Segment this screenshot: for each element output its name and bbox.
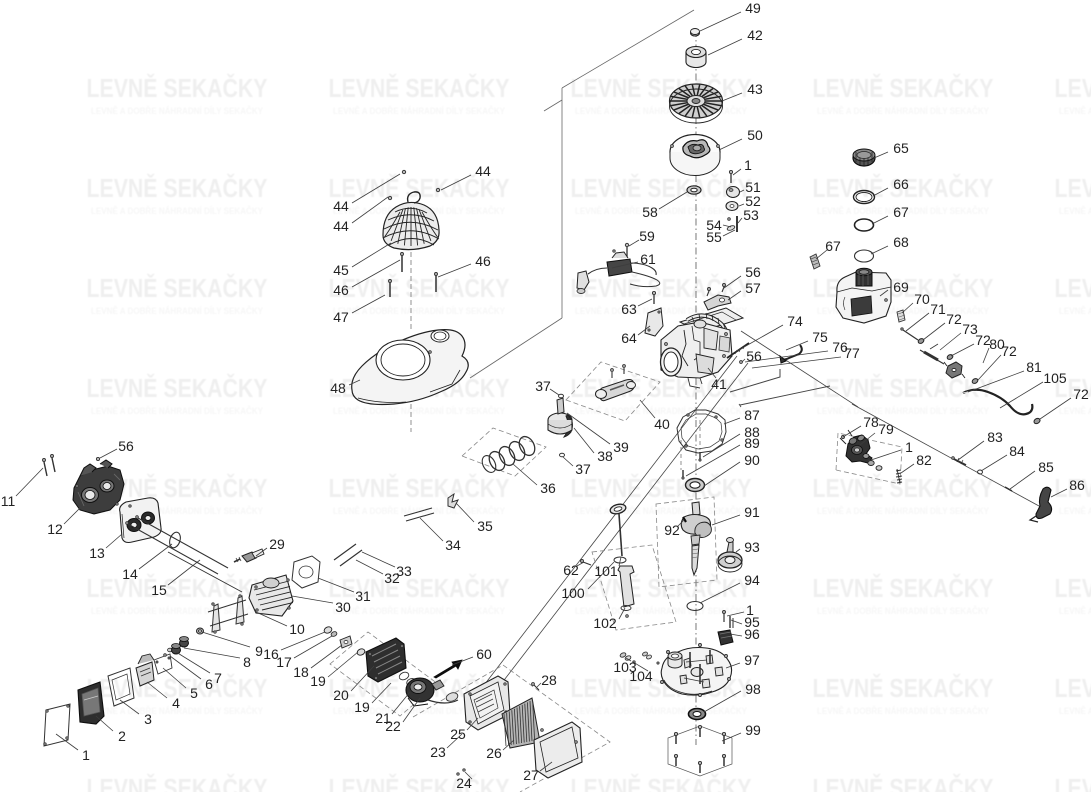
svg-text:3: 3 [144, 711, 152, 727]
svg-text:LEVNĚ SEKAČKY: LEVNĚ SEKAČKY [87, 373, 268, 403]
svg-text:89: 89 [744, 435, 760, 451]
svg-text:30: 30 [335, 599, 351, 615]
svg-text:14: 14 [122, 566, 138, 582]
svg-text:LEVNĚ SEKAČKY: LEVNĚ SEKAČKY [571, 773, 752, 792]
svg-text:49: 49 [745, 0, 761, 16]
svg-text:18: 18 [293, 664, 309, 680]
svg-text:LEVNĚ A DOBŘE NÁHRADNÍ DÍLY SE: LEVNĚ A DOBŘE NÁHRADNÍ DÍLY SEKAČKY [1059, 305, 1091, 317]
svg-text:34: 34 [445, 537, 461, 553]
svg-text:LEVNĚ A DOBŘE NÁHRADNÍ DÍLY SE: LEVNĚ A DOBŘE NÁHRADNÍ DÍLY SEKAČKY [1059, 705, 1091, 717]
svg-text:LEVNĚ A DOBŘE NÁHRADNÍ DÍLY SE: LEVNĚ A DOBŘE NÁHRADNÍ DÍLY SEKAČKY [91, 405, 264, 417]
svg-text:71: 71 [930, 301, 946, 317]
svg-text:LEVNĚ A DOBŘE NÁHRADNÍ DÍLY SE: LEVNĚ A DOBŘE NÁHRADNÍ DÍLY SEKAČKY [333, 605, 506, 617]
svg-text:19: 19 [310, 673, 326, 689]
svg-text:19: 19 [354, 699, 370, 715]
svg-text:75: 75 [812, 329, 828, 345]
svg-text:LEVNĚ SEKAČKY: LEVNĚ SEKAČKY [329, 73, 510, 103]
svg-text:55: 55 [706, 229, 722, 245]
svg-text:33: 33 [396, 563, 412, 579]
svg-text:LEVNĚ SEKAČKY: LEVNĚ SEKAČKY [1055, 273, 1091, 303]
svg-text:25: 25 [450, 726, 466, 742]
svg-text:LEVNĚ A DOBŘE NÁHRADNÍ DÍLY SE: LEVNĚ A DOBŘE NÁHRADNÍ DÍLY SEKAČKY [91, 505, 264, 517]
svg-text:LEVNĚ SEKAČKY: LEVNĚ SEKAČKY [87, 73, 268, 103]
svg-text:LEVNĚ A DOBŘE NÁHRADNÍ DÍLY SE: LEVNĚ A DOBŘE NÁHRADNÍ DÍLY SEKAČKY [333, 305, 506, 317]
svg-text:44: 44 [475, 163, 491, 179]
svg-text:1: 1 [905, 439, 913, 455]
svg-text:74: 74 [787, 313, 803, 329]
svg-text:50: 50 [747, 127, 763, 143]
svg-text:85: 85 [1038, 459, 1054, 475]
svg-text:LEVNĚ SEKAČKY: LEVNĚ SEKAČKY [571, 173, 752, 203]
svg-text:70: 70 [914, 291, 930, 307]
svg-text:20: 20 [333, 687, 349, 703]
svg-text:56: 56 [118, 438, 134, 454]
svg-text:56: 56 [746, 348, 762, 364]
svg-text:59: 59 [639, 228, 655, 244]
svg-text:LEVNĚ SEKAČKY: LEVNĚ SEKAČKY [329, 773, 510, 792]
svg-text:LEVNĚ A DOBŘE NÁHRADNÍ DÍLY SE: LEVNĚ A DOBŘE NÁHRADNÍ DÍLY SEKAČKY [817, 505, 990, 517]
svg-text:67: 67 [825, 238, 841, 254]
svg-text:92: 92 [664, 522, 680, 538]
svg-text:LEVNĚ SEKAČKY: LEVNĚ SEKAČKY [329, 473, 510, 503]
svg-text:LEVNĚ SEKAČKY: LEVNĚ SEKAČKY [1055, 173, 1091, 203]
svg-text:13: 13 [89, 545, 105, 561]
svg-text:LEVNĚ SEKAČKY: LEVNĚ SEKAČKY [1055, 773, 1091, 792]
svg-text:100: 100 [561, 585, 585, 601]
svg-text:41: 41 [711, 376, 727, 392]
svg-text:LEVNĚ SEKAČKY: LEVNĚ SEKAČKY [1055, 573, 1091, 603]
svg-text:LEVNĚ A DOBŘE NÁHRADNÍ DÍLY SE: LEVNĚ A DOBŘE NÁHRADNÍ DÍLY SEKAČKY [575, 205, 748, 217]
svg-text:67: 67 [893, 204, 909, 220]
svg-text:78: 78 [863, 414, 879, 430]
svg-text:56: 56 [745, 264, 761, 280]
svg-text:46: 46 [475, 253, 491, 269]
svg-text:37: 37 [535, 378, 551, 394]
svg-text:77: 77 [844, 345, 860, 361]
svg-text:96: 96 [744, 626, 760, 642]
svg-text:28: 28 [541, 672, 557, 688]
svg-text:31: 31 [355, 588, 371, 604]
svg-text:5: 5 [190, 685, 198, 701]
svg-text:72: 72 [1073, 386, 1089, 402]
svg-text:60: 60 [476, 646, 492, 662]
svg-text:64: 64 [621, 330, 637, 346]
svg-text:LEVNĚ A DOBŘE NÁHRADNÍ DÍLY SE: LEVNĚ A DOBŘE NÁHRADNÍ DÍLY SEKAČKY [817, 705, 990, 717]
svg-text:72: 72 [1001, 343, 1017, 359]
svg-text:46: 46 [333, 282, 349, 298]
svg-text:45: 45 [333, 262, 349, 278]
svg-text:40: 40 [654, 416, 670, 432]
svg-text:57: 57 [745, 280, 761, 296]
svg-text:47: 47 [333, 309, 349, 325]
svg-text:90: 90 [744, 452, 760, 468]
svg-text:2: 2 [118, 728, 126, 744]
svg-text:LEVNĚ SEKAČKY: LEVNĚ SEKAČKY [1055, 73, 1091, 103]
svg-text:48: 48 [330, 380, 346, 396]
svg-text:LEVNĚ SEKAČKY: LEVNĚ SEKAČKY [87, 773, 268, 792]
svg-text:38: 38 [597, 448, 613, 464]
svg-text:82: 82 [916, 452, 932, 468]
svg-text:26: 26 [486, 745, 502, 761]
svg-text:36: 36 [540, 480, 556, 496]
svg-text:LEVNĚ SEKAČKY: LEVNĚ SEKAČKY [813, 773, 994, 792]
svg-text:44: 44 [333, 198, 349, 214]
svg-text:62: 62 [563, 562, 579, 578]
svg-text:15: 15 [151, 582, 167, 598]
svg-text:7: 7 [214, 670, 222, 686]
svg-text:1: 1 [744, 157, 752, 173]
svg-text:22: 22 [385, 718, 401, 734]
svg-text:LEVNĚ A DOBŘE NÁHRADNÍ DÍLY SE: LEVNĚ A DOBŘE NÁHRADNÍ DÍLY SEKAČKY [333, 505, 506, 517]
svg-text:91: 91 [744, 504, 760, 520]
svg-text:68: 68 [893, 234, 909, 250]
svg-text:27: 27 [523, 767, 539, 783]
svg-text:44: 44 [333, 218, 349, 234]
svg-text:105: 105 [1043, 370, 1067, 386]
svg-text:102: 102 [593, 615, 617, 631]
svg-text:LEVNĚ SEKAČKY: LEVNĚ SEKAČKY [813, 573, 994, 603]
svg-text:37: 37 [575, 461, 591, 477]
svg-text:LEVNĚ SEKAČKY: LEVNĚ SEKAČKY [571, 73, 752, 103]
svg-text:LEVNĚ SEKAČKY: LEVNĚ SEKAČKY [571, 473, 752, 503]
svg-text:LEVNĚ A DOBŘE NÁHRADNÍ DÍLY SE: LEVNĚ A DOBŘE NÁHRADNÍ DÍLY SEKAČKY [333, 405, 506, 417]
svg-text:LEVNĚ SEKAČKY: LEVNĚ SEKAČKY [813, 73, 994, 103]
svg-text:LEVNĚ SEKAČKY: LEVNĚ SEKAČKY [87, 173, 268, 203]
svg-text:LEVNĚ A DOBŘE NÁHRADNÍ DÍLY SE: LEVNĚ A DOBŘE NÁHRADNÍ DÍLY SEKAČKY [333, 105, 506, 117]
svg-text:11: 11 [1, 493, 16, 509]
svg-text:8: 8 [243, 654, 251, 670]
svg-text:LEVNĚ A DOBŘE NÁHRADNÍ DÍLY SE: LEVNĚ A DOBŘE NÁHRADNÍ DÍLY SEKAČKY [1059, 105, 1091, 117]
svg-text:58: 58 [642, 204, 658, 220]
svg-text:86: 86 [1069, 477, 1085, 493]
svg-text:63: 63 [621, 301, 637, 317]
svg-text:LEVNĚ A DOBŘE NÁHRADNÍ DÍLY SE: LEVNĚ A DOBŘE NÁHRADNÍ DÍLY SEKAČKY [1059, 605, 1091, 617]
svg-text:LEVNĚ A DOBŘE NÁHRADNÍ DÍLY SE: LEVNĚ A DOBŘE NÁHRADNÍ DÍLY SEKAČKY [91, 305, 264, 317]
svg-text:LEVNĚ SEKAČKY: LEVNĚ SEKAČKY [1055, 673, 1091, 703]
svg-text:LEVNĚ A DOBŘE NÁHRADNÍ DÍLY SE: LEVNĚ A DOBŘE NÁHRADNÍ DÍLY SEKAČKY [91, 205, 264, 217]
svg-text:LEVNĚ A DOBŘE NÁHRADNÍ DÍLY SE: LEVNĚ A DOBŘE NÁHRADNÍ DÍLY SEKAČKY [817, 405, 990, 417]
svg-text:42: 42 [747, 27, 763, 43]
svg-text:1: 1 [82, 747, 90, 763]
svg-text:LEVNĚ A DOBŘE NÁHRADNÍ DÍLY SE: LEVNĚ A DOBŘE NÁHRADNÍ DÍLY SEKAČKY [817, 105, 990, 117]
svg-text:10: 10 [289, 621, 305, 637]
svg-text:101: 101 [594, 563, 618, 579]
svg-text:LEVNĚ A DOBŘE NÁHRADNÍ DÍLY SE: LEVNĚ A DOBŘE NÁHRADNÍ DÍLY SEKAČKY [1059, 505, 1091, 517]
svg-text:LEVNĚ A DOBŘE NÁHRADNÍ DÍLY SE: LEVNĚ A DOBŘE NÁHRADNÍ DÍLY SEKAČKY [1059, 405, 1091, 417]
svg-text:66: 66 [893, 176, 909, 192]
svg-text:LEVNĚ SEKAČKY: LEVNĚ SEKAČKY [87, 273, 268, 303]
svg-text:LEVNĚ A DOBŘE NÁHRADNÍ DÍLY SE: LEVNĚ A DOBŘE NÁHRADNÍ DÍLY SEKAČKY [575, 705, 748, 717]
svg-text:94: 94 [744, 572, 760, 588]
svg-text:93: 93 [744, 539, 760, 555]
svg-text:87: 87 [744, 407, 760, 423]
svg-text:LEVNĚ A DOBŘE NÁHRADNÍ DÍLY SE: LEVNĚ A DOBŘE NÁHRADNÍ DÍLY SEKAČKY [817, 605, 990, 617]
svg-text:4: 4 [172, 695, 180, 711]
svg-text:98: 98 [745, 681, 761, 697]
svg-text:LEVNĚ SEKAČKY: LEVNĚ SEKAČKY [813, 673, 994, 703]
svg-text:65: 65 [893, 140, 909, 156]
svg-text:39: 39 [613, 439, 629, 455]
svg-text:84: 84 [1009, 443, 1025, 459]
svg-text:LEVNĚ A DOBŘE NÁHRADNÍ DÍLY SE: LEVNĚ A DOBŘE NÁHRADNÍ DÍLY SEKAČKY [575, 505, 748, 517]
svg-text:9: 9 [255, 643, 263, 659]
svg-text:61: 61 [640, 251, 656, 267]
svg-text:99: 99 [745, 722, 761, 738]
svg-text:97: 97 [744, 652, 760, 668]
svg-text:83: 83 [987, 429, 1003, 445]
svg-text:24: 24 [456, 775, 472, 791]
svg-text:LEVNĚ A DOBŘE NÁHRADNÍ DÍLY SE: LEVNĚ A DOBŘE NÁHRADNÍ DÍLY SEKAČKY [1059, 205, 1091, 217]
svg-text:104: 104 [629, 668, 653, 684]
svg-text:23: 23 [430, 744, 446, 760]
svg-text:29: 29 [269, 536, 285, 552]
svg-text:LEVNĚ A DOBŘE NÁHRADNÍ DÍLY SE: LEVNĚ A DOBŘE NÁHRADNÍ DÍLY SEKAČKY [91, 105, 264, 117]
svg-text:12: 12 [47, 521, 63, 537]
svg-text:81: 81 [1026, 359, 1042, 375]
svg-text:72: 72 [946, 311, 962, 327]
svg-text:79: 79 [878, 421, 894, 437]
svg-text:LEVNĚ SEKAČKY: LEVNĚ SEKAČKY [329, 273, 510, 303]
svg-text:17: 17 [276, 654, 292, 670]
svg-text:6: 6 [205, 676, 213, 692]
svg-text:69: 69 [893, 279, 909, 295]
svg-text:43: 43 [747, 81, 763, 97]
svg-text:LEVNĚ SEKAČKY: LEVNĚ SEKAČKY [813, 373, 994, 403]
svg-text:35: 35 [477, 518, 493, 534]
svg-text:53: 53 [743, 207, 759, 223]
svg-text:LEVNĚ SEKAČKY: LEVNĚ SEKAČKY [813, 473, 994, 503]
